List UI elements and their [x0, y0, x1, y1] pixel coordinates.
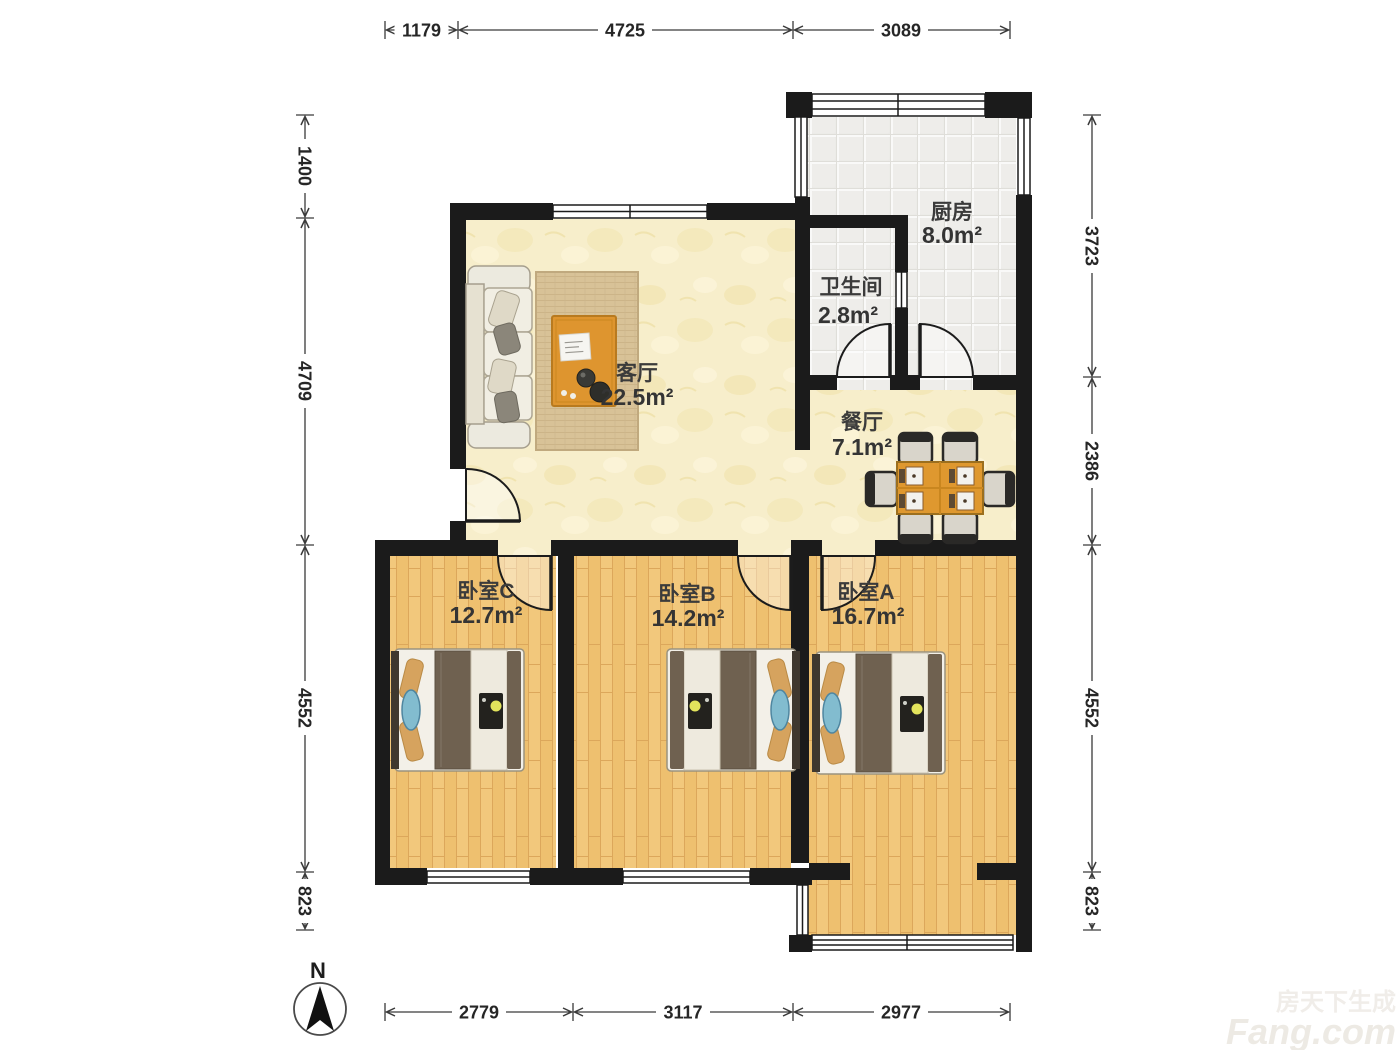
kitchen-area: 8.0m²: [922, 222, 982, 248]
wall-segment: [707, 203, 800, 220]
dim-left-2: 4552: [294, 681, 316, 735]
wall-segment: [530, 868, 623, 885]
bathroom-label: 卫生间: [820, 275, 883, 299]
bathroom-window: [896, 272, 907, 308]
svg-text:4552: 4552: [1082, 688, 1102, 728]
bedroom-b-label: 卧室B: [658, 582, 715, 606]
living-area: 22.5m²: [601, 384, 674, 410]
wall-segment: [809, 863, 850, 880]
dim-bottom-2: 2977: [874, 1001, 928, 1023]
bedroom-b-window: [623, 871, 750, 883]
bedroom-c-label: 卧室C: [457, 579, 514, 603]
wall-segment: [750, 868, 812, 885]
wall-segment: [895, 308, 908, 375]
bed-bedroom-a: [812, 652, 945, 774]
dim-top-2: 3089: [874, 19, 928, 41]
dim-bottom-1: 3117: [656, 1001, 710, 1023]
bed-bedroom-b: [667, 649, 800, 771]
svg-text:4552: 4552: [295, 688, 315, 728]
dim-right-2: 4552: [1081, 681, 1103, 735]
floorplan-page: 厨房 8.0m² 卫生间 2.8m² 客厅 22.5m² 餐厅 7.1m² 卧室…: [0, 0, 1400, 1050]
dim-right-0: 3723: [1081, 219, 1103, 273]
dining-chair: [943, 433, 977, 464]
dining-chair: [866, 472, 897, 506]
kitchen-left-window: [795, 117, 807, 197]
dining-chair: [983, 472, 1014, 506]
watermark-logo: Fang.com: [1226, 1011, 1396, 1050]
wall-segment: [375, 540, 498, 556]
bedroom-c-window: [427, 871, 530, 883]
svg-text:1179: 1179: [402, 20, 441, 40]
bedroom-b-area: 14.2m²: [652, 605, 725, 631]
wall-segment: [1016, 195, 1032, 952]
watermark: 房天下生成 Fang.com: [1226, 988, 1396, 1050]
svg-text:4725: 4725: [605, 20, 645, 40]
svg-text:3117: 3117: [663, 1002, 702, 1022]
compass-needle-icon: [306, 986, 334, 1031]
svg-text:2779: 2779: [459, 1002, 499, 1022]
wall-segment: [795, 197, 810, 450]
dining-chair: [943, 512, 977, 543]
compass-north-label: N: [310, 958, 326, 983]
living-label: 客厅: [616, 361, 658, 385]
bathroom-area: 2.8m²: [818, 302, 878, 328]
wall-segment: [786, 92, 812, 118]
svg-text:823: 823: [1082, 886, 1102, 916]
dim-top-1: 4725: [598, 19, 652, 41]
bay-left-window: [797, 885, 808, 935]
svg-text:3089: 3089: [881, 20, 921, 40]
wall-segment: [890, 375, 920, 390]
svg-text:4709: 4709: [295, 361, 315, 401]
svg-text:3723: 3723: [1082, 226, 1102, 266]
svg-text:2977: 2977: [881, 1002, 921, 1022]
bay-bottom-window: [812, 935, 1013, 950]
wall-segment: [985, 92, 1032, 118]
wall-segment: [551, 540, 738, 556]
dim-right-1: 2386: [1081, 434, 1103, 488]
bedroom-c-area: 12.7m²: [450, 602, 523, 628]
wall-segment: [789, 935, 812, 952]
svg-text:823: 823: [295, 886, 315, 916]
kitchen-top-window: [812, 94, 985, 116]
bedroom-a-area: 16.7m²: [832, 603, 905, 629]
living-room-window: [553, 205, 707, 218]
kitchen-label: 厨房: [931, 200, 973, 224]
svg-text:1400: 1400: [295, 146, 315, 186]
wall-segment: [977, 863, 1016, 880]
dim-top-0: 1179: [395, 19, 449, 41]
dim-left-1: 4709: [294, 354, 316, 408]
bay-window-floor: [807, 880, 1016, 935]
wall-segment: [375, 540, 390, 885]
svg-text:2386: 2386: [1082, 441, 1102, 481]
dining-area: 7.1m²: [832, 434, 892, 460]
wall-segment: [450, 521, 466, 556]
dining-chair: [899, 512, 932, 543]
sofa: [466, 266, 532, 448]
floor-plan-svg: 厨房 8.0m² 卫生间 2.8m² 客厅 22.5m² 餐厅 7.1m² 卧室…: [0, 0, 1400, 1050]
wall-segment: [791, 540, 822, 556]
bed-bedroom-c: [391, 649, 524, 771]
bedroom-a-label: 卧室A: [837, 580, 894, 604]
dining-table: [897, 462, 983, 514]
dim-left-3: 823: [294, 879, 316, 923]
kitchen-right-window: [1018, 118, 1030, 195]
dining-label: 餐厅: [841, 410, 883, 434]
wall-segment: [895, 228, 908, 272]
wall-segment: [558, 556, 574, 868]
dim-right-3: 823: [1081, 879, 1103, 923]
compass: N: [294, 958, 346, 1035]
dim-bottom-0: 2779: [452, 1001, 506, 1023]
dining-chair: [899, 433, 932, 464]
dim-left-0: 1400: [294, 139, 316, 193]
wall-segment: [450, 203, 466, 469]
wall-segment: [795, 215, 908, 228]
